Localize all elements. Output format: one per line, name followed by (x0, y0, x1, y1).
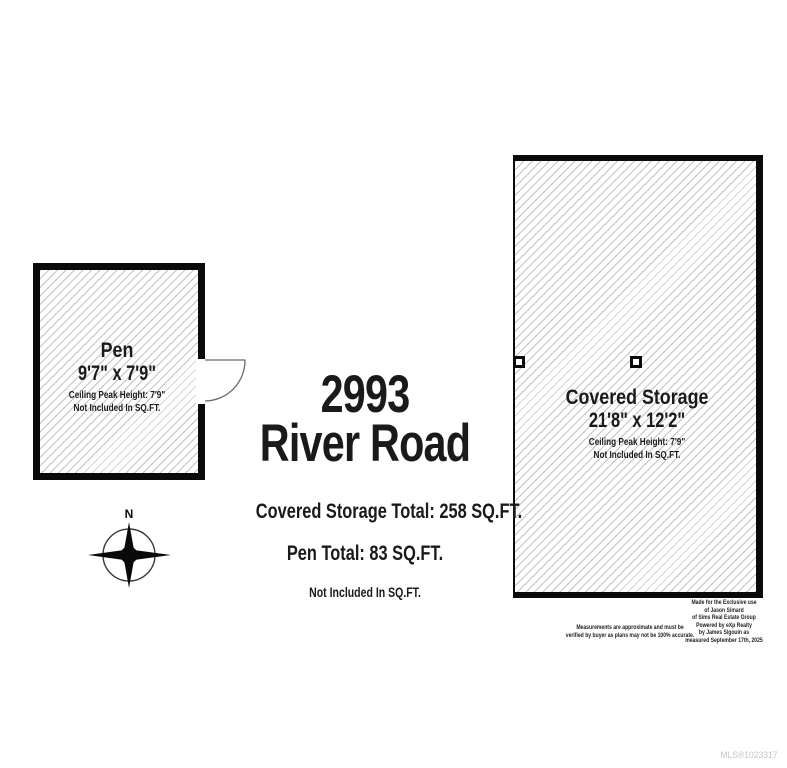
sqft-note: Not Included In SQ.FT. (225, 585, 505, 600)
mls-number: MLS®1023317 (721, 750, 778, 761)
covered-storage-name: Covered Storage (535, 386, 739, 409)
support-post-center (630, 356, 642, 368)
floor-plan-page: { "title": { "line1": "2993", "line2": "… (0, 0, 787, 768)
address-number: 2993 (256, 370, 474, 419)
covered-storage-total: Covered Storage Total: 258 SQ.FT. (225, 500, 505, 524)
covered-storage-dimensions: 21'8" x 12'2" (543, 409, 730, 432)
pen-total: Pen Total: 83 SQ.FT. (225, 542, 505, 566)
pen-room-label: Pen 9'7" x 7'9" Ceiling Peak Height: 7'9… (36, 339, 198, 414)
pen-room-ceiling: Ceiling Peak Height: 7'9" (54, 389, 180, 402)
address-street: River Road (256, 419, 474, 468)
page-title: 2993 River Road (225, 370, 505, 468)
compass-rose-icon: N (84, 505, 174, 597)
compass-north-label: N (125, 507, 134, 521)
pen-room-note: Not Included In SQ.FT. (54, 402, 180, 415)
support-post-left (513, 356, 525, 368)
covered-storage-ceiling: Ceiling Peak Height: 7'9" (543, 436, 730, 449)
pen-room-dimensions: 9'7" x 7'9" (54, 362, 180, 385)
covered-storage-note: Not Included In SQ.FT. (543, 449, 730, 462)
covered-storage-label: Covered Storage 21'8" x 12'2" Ceiling Pe… (517, 386, 757, 461)
credits-text: Made for the Exclusive use of Jason Sima… (658, 599, 787, 644)
covered-storage-room (513, 155, 763, 598)
pen-room-name: Pen (48, 339, 186, 362)
